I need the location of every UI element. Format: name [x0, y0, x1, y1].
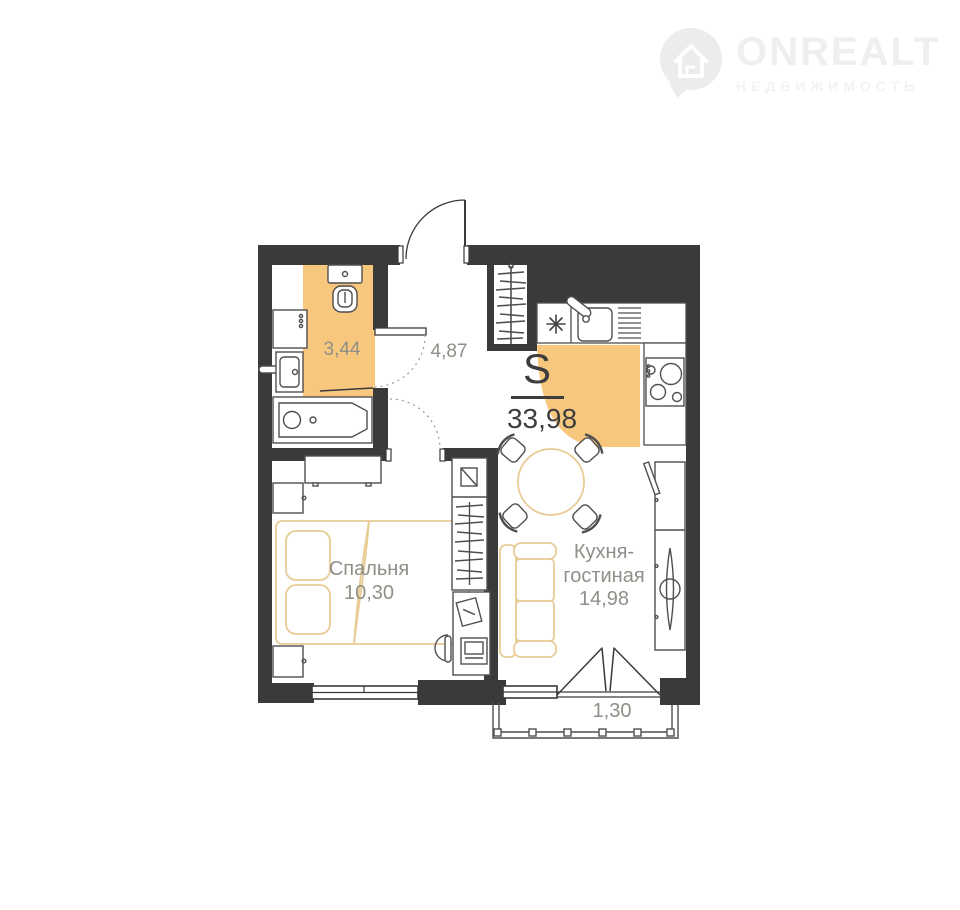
dining-table [518, 449, 584, 515]
kitchen-living-name-line2: гостиная [539, 565, 669, 589]
balcony-area-label: 1,30 [582, 700, 642, 724]
washing-machine [273, 310, 307, 348]
bedroom-label: Спальня 10,30 [309, 558, 429, 605]
floorplan-canvas: ONREALT НЕДВИЖИМОСТЬ [0, 0, 960, 910]
desk [453, 592, 490, 675]
total-area-value: 33,98 [502, 403, 582, 435]
hallway-area-label: 4,87 [419, 341, 479, 363]
total-area-divider [511, 396, 564, 399]
bedroom-door [386, 399, 445, 461]
stove [646, 358, 684, 406]
bedroom-name: Спальня [309, 558, 429, 582]
nightstand-top [273, 483, 306, 513]
wardrobe [452, 458, 487, 590]
dresser [305, 456, 381, 486]
kitchen-living-area: 14,98 [539, 588, 669, 612]
dish-dryer [618, 308, 641, 338]
fridge-asterisk [547, 315, 565, 333]
floor-plan-drawing [0, 0, 960, 910]
bathroom-area-label: 3,44 [312, 339, 372, 361]
kitchen-living-label: Кухня- гостиная 14,98 [539, 541, 669, 612]
kitchen-living-name-line1: Кухня- [539, 541, 669, 565]
bedroom-area: 10,30 [309, 582, 429, 606]
total-area-symbol: S [507, 348, 567, 390]
nightstand-bottom [273, 646, 306, 677]
bedroom-window [312, 686, 418, 699]
coat-rack [496, 264, 526, 344]
balcony-doors [557, 648, 660, 697]
bathtub [273, 397, 372, 443]
entrance-door [398, 200, 469, 263]
kitchen-window [503, 686, 557, 698]
